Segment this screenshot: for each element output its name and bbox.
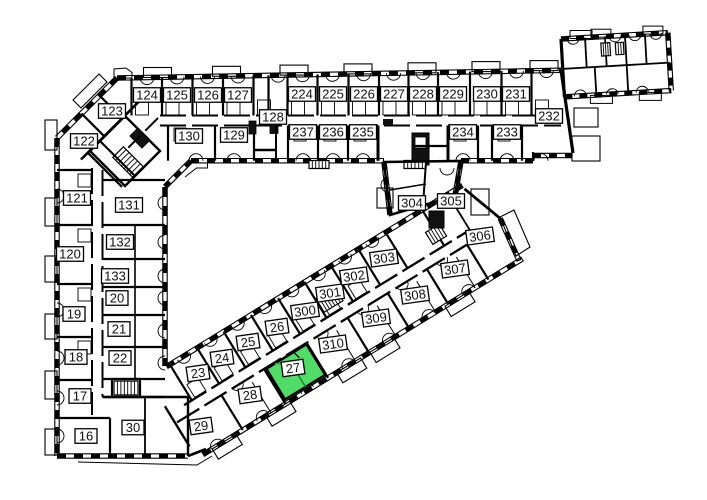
svg-text:302: 302 [342,267,366,285]
svg-text:27: 27 [285,360,301,377]
svg-text:230: 230 [476,87,498,102]
svg-text:224: 224 [291,87,313,102]
svg-text:308: 308 [403,286,427,304]
svg-text:233: 233 [496,125,518,140]
svg-text:131: 131 [118,198,140,213]
svg-text:122: 122 [73,134,95,149]
svg-text:126: 126 [197,88,219,103]
svg-text:22: 22 [113,351,127,366]
svg-text:305: 305 [440,194,462,209]
svg-text:306: 306 [468,227,492,245]
svg-text:18: 18 [69,350,83,365]
svg-text:128: 128 [262,110,284,125]
svg-text:121: 121 [66,191,88,206]
svg-text:133: 133 [104,269,126,284]
svg-text:309: 309 [364,309,388,327]
svg-text:229: 229 [442,87,464,102]
svg-text:234: 234 [452,125,474,140]
svg-text:29: 29 [193,418,209,435]
svg-text:226: 226 [353,87,375,102]
svg-text:123: 123 [101,104,123,119]
svg-text:310: 310 [321,335,345,353]
svg-text:17: 17 [73,389,87,404]
svg-text:132: 132 [109,235,131,250]
svg-text:232: 232 [538,109,560,124]
svg-text:304: 304 [401,196,423,211]
svg-text:20: 20 [110,291,124,306]
svg-text:129: 129 [223,128,245,143]
svg-text:228: 228 [412,87,434,102]
svg-text:231: 231 [505,87,527,102]
svg-text:19: 19 [67,307,81,322]
svg-text:235: 235 [352,125,374,140]
svg-text:28: 28 [242,387,258,404]
svg-text:26: 26 [269,319,285,336]
svg-text:127: 127 [227,88,249,103]
svg-text:303: 303 [372,249,396,267]
svg-text:24: 24 [214,350,230,367]
svg-text:120: 120 [59,247,81,262]
svg-text:301: 301 [318,284,342,302]
svg-text:125: 125 [166,88,188,103]
svg-text:25: 25 [240,334,256,351]
svg-text:300: 300 [293,302,317,320]
svg-text:30: 30 [126,420,140,435]
svg-text:23: 23 [190,365,206,382]
svg-text:21: 21 [112,322,126,337]
svg-text:307: 307 [443,260,467,278]
svg-text:237: 237 [292,125,314,140]
svg-text:236: 236 [322,125,344,140]
svg-text:16: 16 [79,429,93,444]
svg-text:130: 130 [178,129,200,144]
svg-text:124: 124 [136,88,158,103]
svg-text:225: 225 [322,87,344,102]
svg-text:227: 227 [383,87,405,102]
